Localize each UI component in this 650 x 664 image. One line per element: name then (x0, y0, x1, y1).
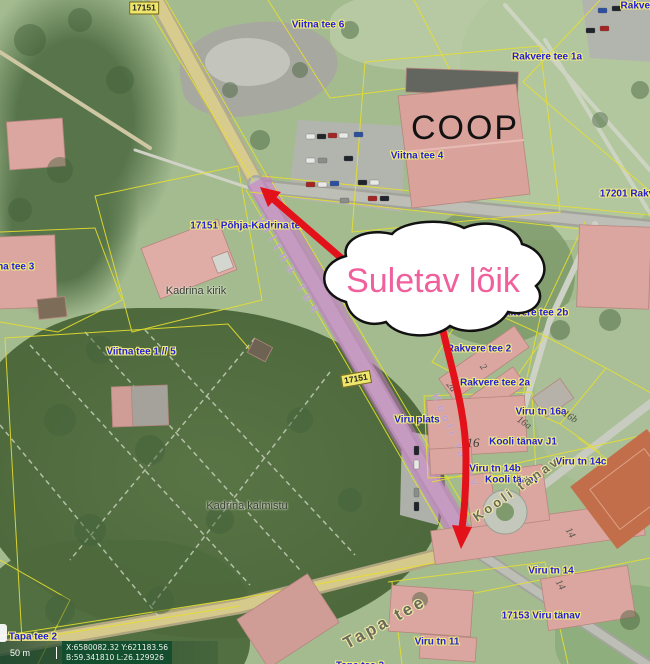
arrowhead-south (452, 525, 472, 549)
scale-label: 50 m (10, 648, 30, 658)
map-canvas[interactable]: 17151 Viitna tee 6 Rakvere Rakvere tee 1… (0, 0, 650, 664)
coord-bl: B:59.341810 L:26.129926 (66, 653, 168, 663)
annotation-svg (0, 0, 650, 664)
scale-bar: 50 m X:6580082.32 Y:621183.56 B:59.34181… (0, 641, 218, 664)
arrow-to-south-end (441, 322, 466, 528)
panel-tab[interactable] (0, 624, 7, 642)
scale-tick (56, 647, 57, 659)
coordinates-readout: X:6580082.32 Y:621183.56 B:59.341810 L:2… (62, 641, 172, 664)
coord-xy: X:6580082.32 Y:621183.56 (66, 643, 168, 653)
closure-label: Suletav lõik (346, 264, 520, 298)
